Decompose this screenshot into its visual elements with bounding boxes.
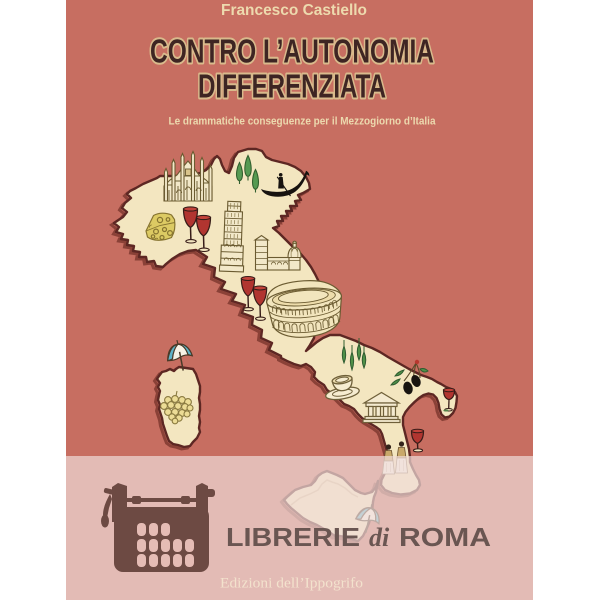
svg-text:Le drammatiche conseguenze per: Le drammatiche conseguenze per il Mezzog… — [169, 116, 437, 128]
svg-text:DIFFERENZIATA: DIFFERENZIATA — [198, 68, 386, 105]
svg-text:Edizioni dell’Ippogrifo: Edizioni dell’Ippogrifo — [220, 576, 363, 592]
svg-text:di: di — [369, 523, 390, 552]
svg-text:LIBRERIE: LIBRERIE — [226, 524, 360, 552]
svg-text:Francesco Castiello: Francesco Castiello — [221, 2, 367, 19]
svg-text:ROMA: ROMA — [399, 524, 491, 552]
svg-text:CONTRO L’AUTONOMIA: CONTRO L’AUTONOMIA — [150, 33, 434, 70]
